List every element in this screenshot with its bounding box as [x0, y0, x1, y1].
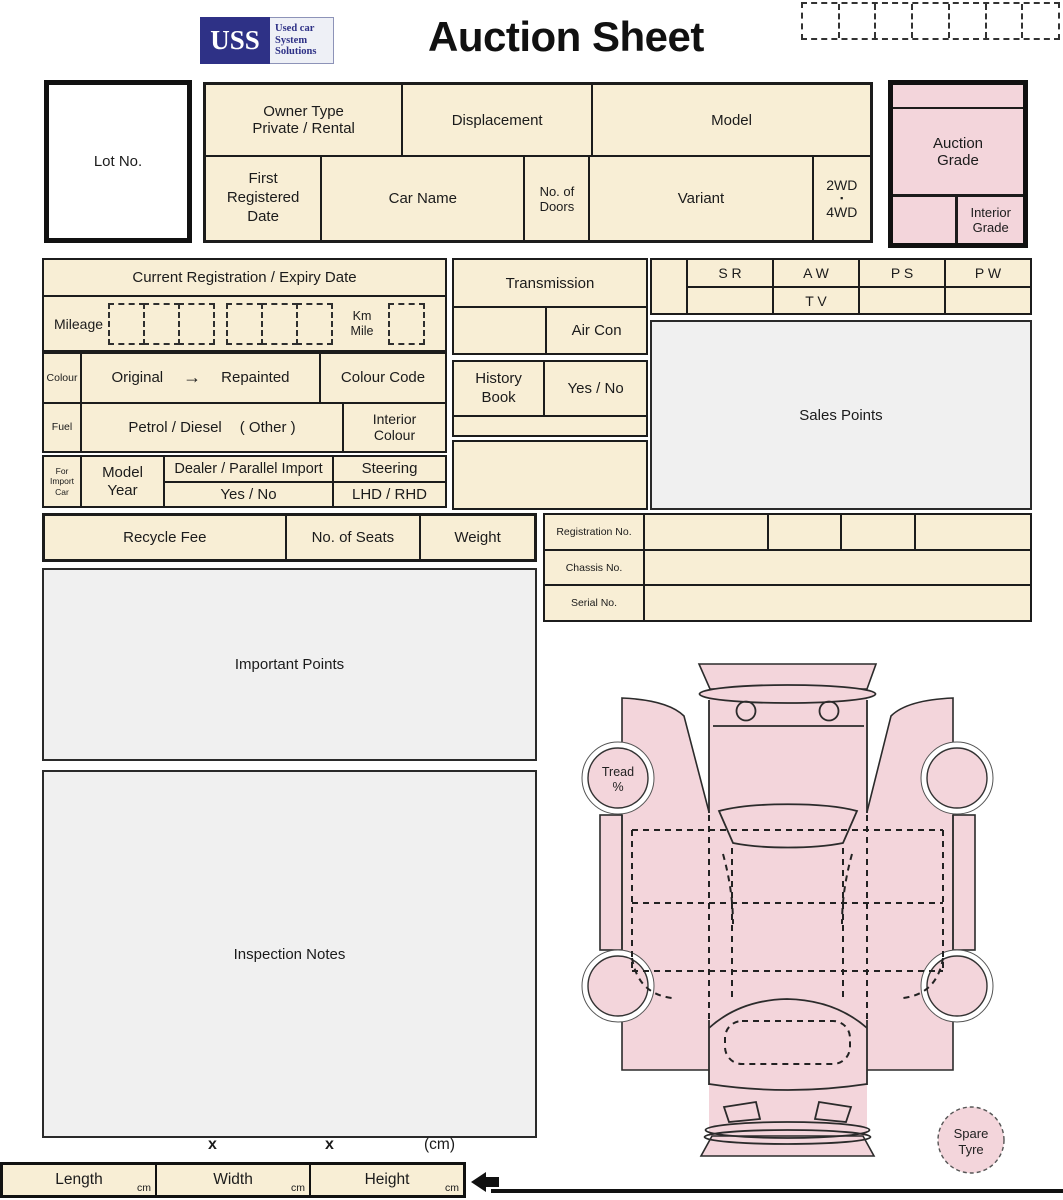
recycle-fee-cell: Recycle Fee — [45, 516, 285, 559]
code-box — [985, 4, 1022, 38]
mileage-unit-box — [388, 303, 425, 345]
colour-repainted-label: Repainted — [221, 369, 289, 386]
mileage-digit-box — [178, 303, 215, 345]
vehicle-id-table: Registration No. Chassis No. Serial No. — [543, 513, 1032, 622]
first-registered-cell: First Registered Date — [206, 157, 320, 240]
mileage-digit-box — [226, 303, 263, 345]
car-front-bumper — [700, 685, 876, 703]
dimension-row: Length cm Width cm Height cm — [0, 1162, 466, 1198]
tread-label-line2: % — [612, 780, 623, 794]
car-damage-diagram: Tread % Spare Tyre — [580, 648, 1063, 1180]
aircon-label-cell: Air Con — [547, 308, 646, 353]
displacement-cell: Displacement — [401, 85, 591, 155]
feature-sr-value — [688, 286, 772, 313]
colour-code-cell: Colour Code — [319, 354, 445, 402]
chassis-no-label: Chassis No. — [545, 551, 645, 585]
uss-logo-text: Used car System Solutions — [270, 17, 334, 64]
import-yes-no-cell: Yes / No — [165, 481, 332, 507]
colour-original-label: Original — [111, 369, 163, 386]
length-unit: cm — [137, 1182, 151, 1194]
recycle-fee-row: Recycle Fee No. of Seats Weight — [42, 513, 537, 562]
registration-title: Current Registration / Expiry Date — [44, 260, 445, 297]
colour-label: Colour — [44, 354, 82, 402]
code-box — [838, 4, 875, 38]
uss-logo-mark: USS — [200, 17, 270, 64]
tread-label-line1: Tread — [602, 765, 634, 779]
weight-cell: Weight — [419, 516, 534, 559]
spare-tyre-line2: Tyre — [958, 1142, 983, 1157]
transmission-cell: Transmission — [454, 260, 646, 308]
steering-value-cell: LHD / RHD — [334, 481, 445, 507]
import-car-label: For Import Car — [44, 457, 82, 506]
fuel-other-label: ( Other ) — [240, 419, 296, 436]
height-cell: Height cm — [309, 1165, 463, 1195]
vehicle-info-table: Owner Type Private / Rental Displacement… — [203, 82, 873, 243]
length-label: Length — [55, 1171, 102, 1189]
inspection-notes-panel: Inspection Notes — [42, 770, 537, 1138]
page-title: Auction Sheet — [428, 13, 704, 61]
model-year-cell: Model Year — [82, 457, 165, 506]
code-box — [948, 4, 985, 38]
height-unit: cm — [445, 1182, 459, 1194]
history-note-strip — [454, 415, 646, 435]
drive-separator-dot: ▪ — [840, 193, 843, 203]
front-right-wheel — [927, 748, 987, 808]
mileage-label: Mileage — [54, 316, 104, 332]
variant-cell: Variant — [588, 157, 811, 240]
car-right-rocker — [953, 815, 975, 950]
registration-no-cell — [914, 515, 1030, 549]
drive-type-cell: 2WD ▪ 4WD — [812, 157, 870, 240]
registration-no-cell — [645, 515, 767, 549]
lot-number-box: Lot No. — [44, 80, 192, 243]
dimension-times-2: x — [325, 1136, 334, 1154]
history-book-block: History Book Yes / No — [452, 360, 648, 437]
feature-ps-value — [860, 286, 944, 313]
feature-ps-cell: P S — [860, 260, 944, 286]
auction-grade-box: Auction Grade Interior Grade — [888, 80, 1028, 248]
mileage-digit-box — [296, 303, 333, 345]
rear-right-wheel — [927, 956, 987, 1016]
uss-logo: USS Used car System Solutions — [200, 17, 334, 64]
auction-sheet: USS Used car System Solutions Auction Sh… — [0, 0, 1063, 1200]
dimension-times-1: x — [208, 1136, 217, 1154]
fuel-type-cell: Petrol / Diesel ( Other ) — [82, 404, 342, 452]
mileage-digit-box — [261, 303, 298, 345]
rear-left-wheel — [588, 956, 648, 1016]
code-box — [911, 4, 948, 38]
registration-mileage-block: Current Registration / Expiry Date Milea… — [42, 258, 447, 352]
mileage-digit-box — [143, 303, 180, 345]
code-box — [1021, 4, 1058, 38]
features-table: S R A W T V P S P W — [650, 258, 1032, 315]
mileage-unit-label: Km Mile — [342, 309, 382, 339]
grade-top-strip — [893, 85, 1023, 109]
bottom-rule — [491, 1189, 1063, 1193]
model-cell: Model — [591, 85, 870, 155]
drive-2wd-label: 2WD — [826, 177, 857, 193]
chassis-no-cell — [645, 551, 1030, 585]
car-name-cell: Car Name — [320, 157, 523, 240]
features-corner-cell — [652, 260, 688, 313]
import-car-block: For Import Car Model Year Dealer / Paral… — [42, 455, 447, 508]
aircon-value-cell — [454, 308, 547, 353]
code-box — [803, 4, 838, 38]
serial-no-cell — [645, 586, 1030, 620]
feature-tv-cell: T V — [774, 286, 858, 313]
dimension-cm-note: (cm) — [424, 1136, 455, 1154]
feature-aw-cell: A W — [774, 260, 858, 286]
interior-grade-cell: Interior Grade — [958, 197, 1023, 243]
width-unit: cm — [291, 1182, 305, 1194]
registration-no-label: Registration No. — [545, 515, 645, 549]
owner-type-cell: Owner Type Private / Rental — [206, 85, 401, 155]
fuel-label: Fuel — [44, 404, 82, 452]
transmission-block: Transmission Air Con — [452, 258, 648, 355]
remarks-box — [452, 440, 648, 510]
feature-pw-value — [946, 286, 1030, 313]
code-box-strip — [801, 2, 1060, 40]
code-box — [874, 4, 911, 38]
doors-cell: No. of Doors — [523, 157, 588, 240]
height-label: Height — [365, 1171, 410, 1189]
colour-original-repainted-cell: Original → Repainted — [82, 354, 319, 402]
important-points-panel: Important Points — [42, 568, 537, 761]
mileage-digit-box — [108, 303, 145, 345]
grade-sub-cell — [893, 197, 958, 243]
feature-pw-cell: P W — [946, 260, 1030, 286]
steering-label-cell: Steering — [334, 457, 445, 481]
history-book-label: History Book — [454, 362, 545, 415]
registration-no-cell — [840, 515, 914, 549]
width-cell: Width cm — [155, 1165, 309, 1195]
seats-cell: No. of Seats — [285, 516, 419, 559]
registration-no-cell — [767, 515, 840, 549]
interior-colour-cell: Interior Colour — [342, 404, 445, 452]
repaint-arrow-icon: → — [183, 367, 201, 388]
history-yes-no-cell: Yes / No — [545, 362, 646, 415]
colour-fuel-block: Colour Original → Repainted Colour Code … — [42, 352, 447, 453]
drive-4wd-label: 4WD — [826, 204, 857, 220]
car-rear-skirt — [701, 1136, 874, 1156]
serial-no-label: Serial No. — [545, 586, 645, 620]
width-label: Width — [213, 1171, 253, 1189]
dealer-import-cell: Dealer / Parallel Import — [165, 457, 332, 481]
length-cell: Length cm — [3, 1165, 155, 1195]
sales-points-panel: Sales Points — [650, 320, 1032, 510]
windshield — [719, 804, 857, 847]
car-side-panels — [622, 813, 953, 1070]
spare-tyre-line1: Spare — [954, 1126, 989, 1141]
car-left-rocker — [600, 815, 622, 950]
auction-grade-cell: Auction Grade — [893, 109, 1023, 197]
fuel-types-label: Petrol / Diesel — [128, 419, 221, 436]
feature-sr-cell: S R — [688, 260, 772, 286]
